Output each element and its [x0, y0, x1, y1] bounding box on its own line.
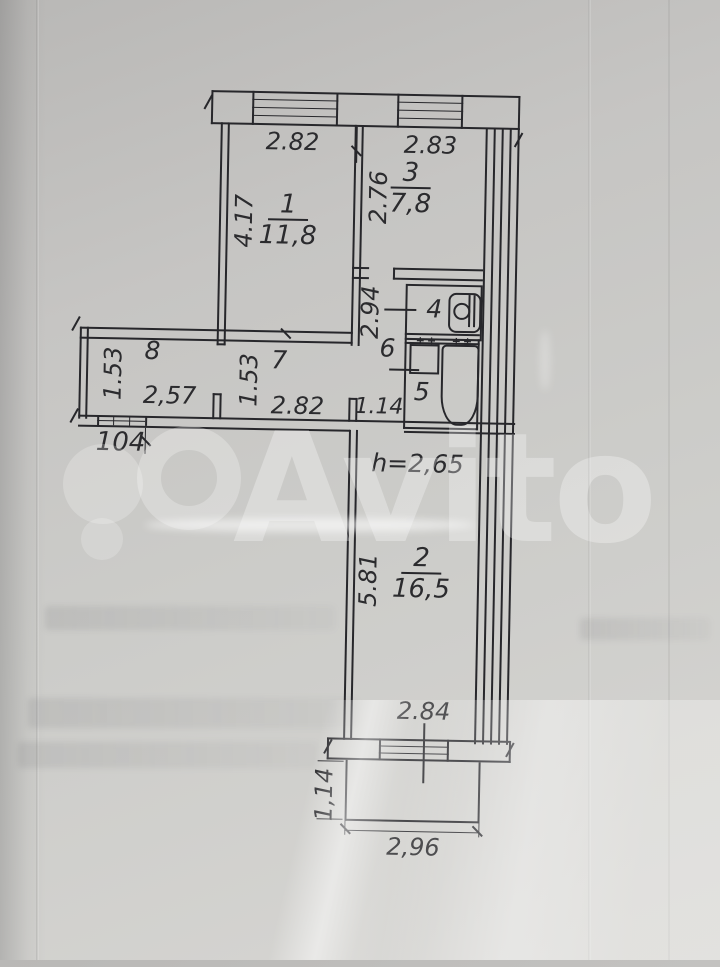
room2-number: 2: [401, 544, 442, 575]
room3-bottom-wall: [8, 0, 720, 7]
dim-balcony-width: 2,96: [378, 833, 448, 860]
bathroom: ++ ++: [8, 0, 720, 7]
room6-number: 6: [379, 333, 395, 362]
apartment-number: 104: [95, 429, 145, 456]
room3-area: 7,8: [370, 188, 451, 220]
faucet-icon: ++: [416, 334, 439, 347]
room2-area: 16,5: [379, 573, 464, 605]
room1-area: 11,8: [241, 220, 334, 252]
wall-stub: [212, 393, 214, 419]
room5-number: 5: [413, 377, 429, 406]
dim-room7-width: 2.82: [262, 392, 332, 419]
room8-number: 8: [144, 336, 160, 365]
dim-room1-width: 2.82: [257, 128, 327, 155]
window-hatch-line: [447, 740, 449, 762]
window-hatch-line: [252, 107, 338, 110]
window-hatch-line: [379, 752, 449, 754]
dim-room8-width: 2,57: [134, 382, 204, 409]
dim-corridor-width: 1.14: [354, 394, 403, 421]
balcony-line: [344, 760, 347, 821]
dim-tick: [280, 328, 291, 339]
leader-line: [389, 369, 419, 372]
wall-line: [211, 90, 520, 98]
entrance-door-line: [97, 420, 145, 422]
hallway-bottom-wall: [8, 0, 720, 7]
ceiling-height-note: h=2,65: [371, 450, 464, 478]
dim-room7-depth: 1.53: [235, 340, 263, 420]
upper-walls: [8, 0, 720, 7]
room1-number: 1: [268, 190, 309, 221]
wall-line: [393, 268, 395, 280]
faucet-icon: ++: [452, 335, 475, 348]
wall-line: [393, 278, 483, 282]
hallway-walls: [8, 0, 720, 7]
wall-line: [393, 268, 483, 272]
wall-line: [343, 430, 351, 740]
wc-room: [8, 0, 720, 7]
wall-stub: [219, 393, 221, 419]
window-hatch-line: [379, 738, 381, 760]
wall-stub: [213, 393, 222, 395]
balcony-line: [477, 762, 480, 823]
wall-line: [327, 757, 511, 763]
right-outer-wall: [8, 0, 720, 7]
balcony: [8, 0, 720, 7]
dim-room2-window-width: 2.84: [388, 698, 458, 725]
window-hatch-line: [397, 118, 463, 120]
wall-line: [352, 267, 369, 269]
wall-line: [403, 427, 478, 430]
wall-line: [217, 343, 226, 345]
room7-number: 7: [271, 345, 287, 374]
top-window-wall: [8, 0, 720, 7]
room3-number: 3: [390, 159, 431, 190]
room2-label: 2 16,5: [379, 543, 464, 605]
window-hatch-line: [379, 745, 449, 747]
dim-room8-depth: 1.53: [99, 333, 127, 413]
wall-stub: [348, 398, 350, 422]
dim-room3-width: 2.83: [395, 132, 465, 159]
room1-label: 1 11,8: [241, 190, 334, 252]
dim-balcony-depth: 1,14: [310, 754, 338, 834]
wall-line: [85, 327, 89, 419]
wall-line: [404, 431, 515, 435]
dim-room2-depth: 5.81: [354, 540, 382, 620]
balcony-line: [344, 819, 479, 824]
floor-plan-photo: ++ ++: [0, 0, 720, 960]
wall-line: [403, 338, 407, 429]
wall-line: [518, 96, 521, 130]
leader-line: [384, 308, 416, 311]
floor-plan: ++ ++: [0, 0, 720, 967]
room3-label: 3 7,8: [370, 158, 451, 220]
window-hatch-line: [252, 115, 338, 118]
wall-line: [78, 327, 82, 419]
room2-walls: [8, 0, 720, 7]
entrance-door-line: [145, 417, 147, 426]
room4-number: 4: [426, 294, 442, 323]
bathtub-icon: [440, 345, 480, 427]
window-hatch-line: [397, 102, 463, 104]
wall-line: [217, 122, 223, 345]
window-hatch-line: [252, 99, 338, 102]
window-hatch-line: [397, 110, 463, 112]
